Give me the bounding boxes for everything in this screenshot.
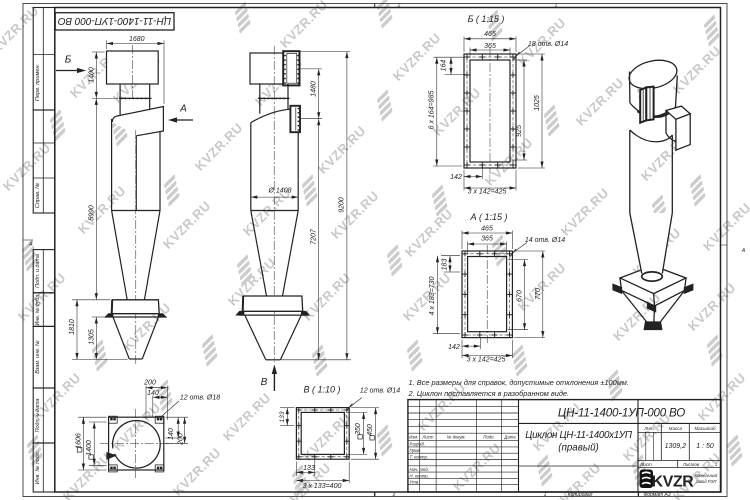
svg-text:670: 670 xyxy=(517,290,524,302)
svg-text:Разраб.: Разраб. xyxy=(410,442,426,447)
svg-text:завод РЭП: завод РЭП xyxy=(695,479,718,484)
svg-text:Дата: Дата xyxy=(503,435,516,440)
svg-text:Лист: Лист xyxy=(639,462,652,467)
svg-text:7207: 7207 xyxy=(310,228,317,245)
svg-text:Б ( 1:15 ): Б ( 1:15 ) xyxy=(468,14,505,24)
svg-text:Изм.: Изм. xyxy=(409,435,418,440)
svg-text:ЦН-11-1400-1УП-000 ВО: ЦН-11-1400-1УП-000 ВО xyxy=(58,15,172,26)
svg-text:365: 365 xyxy=(484,43,496,50)
svg-text:Формат А3: Формат А3 xyxy=(643,492,671,498)
svg-text:925: 925 xyxy=(516,125,523,137)
svg-text:1680: 1680 xyxy=(129,36,145,43)
svg-text:1810: 1810 xyxy=(69,319,76,335)
svg-text:Лит.: Лит. xyxy=(643,426,655,431)
svg-text:9200: 9200 xyxy=(339,197,346,213)
svg-text:200: 200 xyxy=(143,380,156,387)
svg-text:1606: 1606 xyxy=(75,433,82,449)
svg-text:Т. контр.: Т. контр. xyxy=(410,454,429,459)
svg-text:Копировал: Копировал xyxy=(568,492,593,498)
svg-text:Лист: Лист xyxy=(421,435,433,440)
svg-text:Подп.: Подп. xyxy=(483,435,494,440)
svg-text:18 отв. Ø14: 18 отв. Ø14 xyxy=(528,41,568,48)
svg-text:Масштаб: Масштаб xyxy=(694,426,715,431)
svg-text:3 х 133=400: 3 х 133=400 xyxy=(303,483,342,490)
svg-text:№ докум.: № докум. xyxy=(447,435,466,440)
svg-text:12 отв. Ø18: 12 отв. Ø18 xyxy=(180,395,220,402)
svg-text:1400: 1400 xyxy=(86,440,93,456)
svg-text:Листов: Листов xyxy=(682,462,700,467)
svg-text:5990: 5990 xyxy=(88,205,95,221)
svg-text:В ( 1:10 ): В ( 1:10 ) xyxy=(303,385,340,395)
svg-text:Взам. инв. №: Взам. инв. № xyxy=(35,340,41,374)
svg-text:450: 450 xyxy=(367,424,374,436)
svg-text:1400: 1400 xyxy=(88,67,95,83)
svg-text:KVZR: KVZR xyxy=(652,474,695,491)
svg-text:200: 200 xyxy=(177,433,184,446)
svg-text:Нач. отд.: Нач. отд. xyxy=(410,467,429,472)
svg-text:164: 164 xyxy=(440,60,447,72)
svg-text:Перв. примен.: Перв. примен. xyxy=(35,64,41,101)
svg-text:1: 1 xyxy=(544,492,547,498)
svg-text:350: 350 xyxy=(355,423,362,435)
svg-text:Подп. и дата: Подп. и дата xyxy=(35,399,41,433)
svg-text:Инв. № подл.: Инв. № подл. xyxy=(35,451,41,484)
svg-text:465: 465 xyxy=(484,31,496,38)
svg-text:(правый): (правый) xyxy=(558,442,599,453)
svg-text:133: 133 xyxy=(303,465,315,472)
svg-text:Н. контр.: Н. контр. xyxy=(410,473,429,478)
svg-text:1025: 1025 xyxy=(534,95,541,111)
svg-text:770: 770 xyxy=(535,288,542,300)
svg-text:140: 140 xyxy=(168,428,175,440)
svg-text:Циклон ЦН-11-1400х1УП: Циклон ЦН-11-1400х1УП xyxy=(525,430,633,441)
svg-text:142: 142 xyxy=(448,344,460,351)
svg-text:2: 2 xyxy=(397,2,401,7)
svg-text:Инв. № дубл.: Инв. № дубл. xyxy=(35,294,41,326)
svg-text:Котельный: Котельный xyxy=(695,473,718,478)
svg-text:142: 142 xyxy=(450,174,462,181)
svg-text:А: А xyxy=(28,241,33,247)
svg-text:183: 183 xyxy=(441,259,448,271)
svg-text:Пров.: Пров. xyxy=(410,448,421,453)
svg-text:3 х 142=425: 3 х 142=425 xyxy=(467,357,506,364)
svg-text:1. Все размеры для справок: 1. Все размеры для справок, допустимые о… xyxy=(409,378,629,387)
svg-text:6 х 164=985: 6 х 164=985 xyxy=(429,91,436,130)
svg-text:1480: 1480 xyxy=(310,81,317,97)
svg-text:4 х 183=730: 4 х 183=730 xyxy=(429,277,436,316)
svg-text:133: 133 xyxy=(279,411,286,422)
svg-text:465: 465 xyxy=(481,226,493,233)
svg-text:1 : 50: 1 : 50 xyxy=(696,443,714,450)
svg-text:Утв.: Утв. xyxy=(410,480,420,485)
svg-text:365: 365 xyxy=(481,236,493,243)
svg-text:А: А xyxy=(741,248,746,254)
svg-text:В: В xyxy=(261,377,268,388)
svg-text:1309,2: 1309,2 xyxy=(665,443,687,450)
svg-text:Масса: Масса xyxy=(669,426,683,431)
svg-text:12 отв. Ø14: 12 отв. Ø14 xyxy=(360,388,400,395)
svg-text:2. Циклон поставляется в р: 2. Циклон поставляется в разобранном вид… xyxy=(408,389,570,398)
svg-text:ЦН-11-1400-1УП-000 ВО: ЦН-11-1400-1УП-000 ВО xyxy=(558,406,685,419)
svg-text:14 отв. Ø14: 14 отв. Ø14 xyxy=(525,237,565,244)
svg-text:Ø 1408: Ø 1408 xyxy=(268,188,292,195)
svg-text:2: 2 xyxy=(392,492,396,497)
svg-text:Справ. №: Справ. № xyxy=(35,183,41,208)
svg-text:А ( 1:15 ): А ( 1:15 ) xyxy=(469,212,507,222)
svg-text:Подп. и дата: Подп. и дата xyxy=(35,254,41,288)
svg-text:1305: 1305 xyxy=(88,329,95,345)
svg-text:Б: Б xyxy=(65,55,72,66)
svg-text:140: 140 xyxy=(147,390,159,397)
svg-text:А: А xyxy=(179,104,187,115)
svg-text:3 х 142=425: 3 х 142=425 xyxy=(468,189,507,196)
